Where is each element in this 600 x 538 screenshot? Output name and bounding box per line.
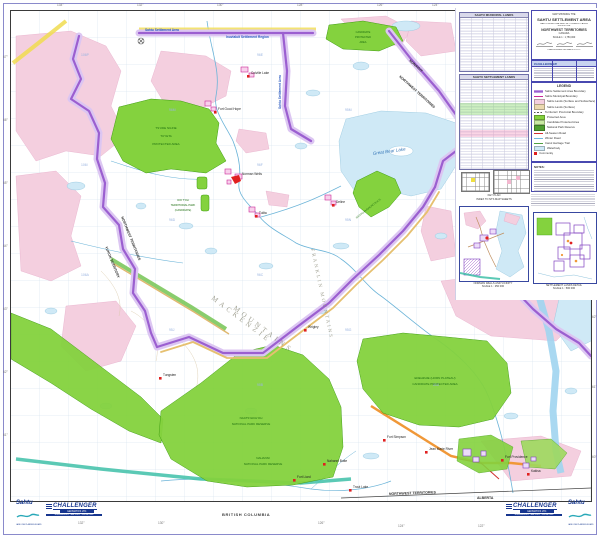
svg-text:ALBERTA: ALBERTA (477, 496, 494, 500)
bottom-tick: 130° (158, 521, 165, 525)
svg-text:95N: 95N (345, 218, 352, 222)
key-plan-grid-right (493, 170, 530, 194)
highlighted-rows-green (460, 103, 528, 115)
key-plan-current-sheet (471, 178, 475, 182)
svg-text:95J: 95J (169, 328, 175, 332)
left-tick: 65° (3, 181, 8, 185)
notes-block: NOTES: (531, 162, 597, 192)
top-tick: 124° (432, 3, 439, 7)
map-surround-panel: SAHTU MUNICIPAL LANDS SAHTU SETTLEMENT L… (455, 8, 598, 300)
svg-text:AREA: AREA (359, 40, 366, 44)
left-tick: 62° (3, 370, 8, 374)
sahtu-logo-text: Sahtu (568, 500, 594, 506)
map-title: SAHTU SETTLEMENT AREA (532, 17, 596, 22)
british-columbia-label: BRITISH COLUMBIA (222, 512, 270, 517)
svg-text:TUYETA: TUYETA (160, 134, 172, 138)
svg-text:96F: 96F (257, 163, 263, 167)
key-plan-caption2: INDEX TO NTS MAP SHEETS (459, 198, 529, 201)
svg-text:NATIONAL PARK RESERVE: NATIONAL PARK RESERVE (244, 462, 283, 466)
challenger-logo-text: CHALLENGER (513, 503, 557, 510)
legend-label: Canol Heritage Trail (545, 142, 570, 145)
sahtu-logo-right: Sahtu LAND USE PLANNING BOARD (568, 500, 594, 526)
right-tick: 60° (592, 455, 597, 459)
map-sheet-page: { "page_title": "Sahtu Settlement Area M… (0, 0, 600, 538)
legend-swatch-lands-s (534, 104, 545, 109)
svg-text:96M: 96M (169, 108, 176, 112)
svg-text:PROTECTED: PROTECTED (355, 35, 371, 39)
challenger-wordmark-small: CHALLENGER (534, 62, 557, 66)
challenger-logo-left: CHALLENGER GEOMATICS LTD. ENGINEERING · … (46, 503, 102, 516)
svg-text:106P: 106P (81, 53, 90, 57)
challenger-logo-right: CHALLENGER GEOMATICS LTD. ENGINEERING · … (506, 503, 562, 516)
legend-label: Sahtu Settlement Area Boundary (545, 90, 586, 93)
mine-symbol (138, 38, 144, 44)
legend-label: Waterbody (547, 147, 560, 150)
legend-label: Winter Road (545, 137, 561, 140)
svg-text:(CANDIDATE): (CANDIDATE) (175, 208, 192, 212)
svg-text:Fort Liard: Fort Liard (297, 475, 311, 479)
challenger-bars-icon (46, 504, 52, 509)
bottom-tick: 132° (78, 521, 85, 525)
legend-swatch-winter-road (534, 138, 543, 139)
inset2-caption2: SCALE 1 : 500 000 (533, 287, 595, 290)
key-plan-caption: KEY PLAN (459, 194, 529, 197)
sahtu-wave-icon (568, 513, 592, 519)
legend-swatch-canol (534, 143, 543, 144)
inset-map-settlement-lands: SETTLEMENT LANDS DETAIL SCALE 1 : 500 00… (533, 212, 595, 291)
svg-text:Nahanni Butte: Nahanni Butte (327, 459, 347, 463)
svg-text:NAATS'IHCH'OH: NAATS'IHCH'OH (240, 416, 263, 420)
svg-text:96C: 96C (257, 273, 264, 277)
right-tick: 62° (592, 315, 597, 319)
top-tick: 134° (57, 3, 64, 7)
revision-table: CHALLENGER (531, 60, 597, 82)
table-rows (460, 18, 528, 71)
svg-text:96E: 96E (257, 53, 264, 57)
top-tick: 130° (217, 3, 224, 7)
challenger-logo-top: CHALLENGER (506, 503, 562, 510)
top-tick: 128° (297, 3, 304, 7)
legend-title: LEGEND (532, 84, 596, 88)
svg-text:95G: 95G (345, 328, 352, 332)
svg-text:Norman Wells: Norman Wells (242, 172, 262, 176)
left-tick: 61° (3, 433, 8, 437)
svg-text:DOI T'OH: DOI T'OH (177, 198, 188, 202)
svg-text:95M: 95M (345, 108, 352, 112)
legend-swatch-park (534, 125, 545, 130)
svg-text:Jean Marie River: Jean Marie River (429, 447, 454, 451)
svg-text:Inuvialuit Settlement Region: Inuvialuit Settlement Region (226, 35, 269, 39)
svg-text:CANDIDATE: CANDIDATE (356, 30, 371, 34)
title-kicker: MAP SHOWING THE (532, 13, 596, 16)
svg-text:TERRITORIAL PARK: TERRITORIAL PARK (171, 203, 196, 207)
svg-text:PROTECTED AREA: PROTECTED AREA (152, 142, 179, 146)
svg-text:Colville Lake: Colville Lake (251, 71, 269, 75)
legend-label: Territorial / Provincial Boundary (545, 111, 584, 114)
sahtu-wave-icon (16, 513, 40, 519)
key-plan-cell (516, 176, 520, 180)
svg-text:NATIONAL PARK RESERVE: NATIONAL PARK RESERVE (232, 422, 271, 426)
svg-text:Kakisa: Kakisa (531, 469, 541, 473)
title-country: CANADA (532, 32, 596, 35)
inset1-canvas (459, 206, 529, 282)
challenger-logo-top: CHALLENGER (46, 503, 102, 510)
bottom-tick: 124° (398, 524, 405, 528)
key-plan-cell (507, 180, 511, 184)
challenger-logo-sub: GEOMATICS LTD. (520, 510, 554, 513)
svg-text:96D: 96D (169, 218, 176, 222)
inset1-caption2: SCALE 1 : 250 000 (459, 285, 527, 288)
revision-rows (534, 68, 594, 79)
legend-swatch-water (534, 146, 545, 151)
challenger-logo-bar: ENGINEERING · MAPPING · SURVEYING (46, 514, 102, 516)
legend-label: All-Season Road (545, 132, 566, 135)
challenger-bars-icon (506, 504, 512, 509)
notes-text-lines (534, 170, 594, 192)
svg-text:Fort Simpson: Fort Simpson (387, 435, 406, 439)
legend-swatch-road (534, 133, 543, 134)
svg-text:106I: 106I (81, 163, 88, 167)
municipal-lands-table: SAHTU MUNICIPAL LANDS (459, 12, 529, 72)
title-credit: CHALLENGER GEOMATICS LTD. (532, 49, 596, 51)
svg-text:CANDIDATE PROTECTED AREA: CANDIDATE PROTECTED AREA (412, 382, 457, 386)
bottom-tick: 126° (318, 521, 325, 525)
key-plan-grid-left (461, 172, 490, 192)
title-block: MAP SHOWING THE SAHTU SETTLEMENT AREA SA… (531, 10, 597, 60)
legend-label: Sahtu Lands (Surface) (547, 106, 575, 109)
svg-text:Fort Providence: Fort Providence (505, 455, 528, 459)
svg-text:EDEHZHIE (HORN PLATEAU): EDEHZHIE (HORN PLATEAU) (414, 376, 455, 380)
svg-text:Fort Good Hope: Fort Good Hope (218, 107, 241, 111)
top-tick: 132° (137, 3, 144, 7)
svg-text:TS'UDE NILINE: TS'UDE NILINE (155, 126, 176, 130)
title-scale: SCALE 1 : 1,750,000 (532, 36, 596, 39)
legend: LEGEND Sahtu Settlement Area Boundary Sa… (531, 82, 597, 162)
signature-lines (534, 40, 594, 49)
svg-text:Trout Lake: Trout Lake (353, 485, 368, 489)
legend-item: Community (532, 151, 596, 156)
right-tick: 61° (592, 385, 597, 389)
svg-text:Wrigley: Wrigley (308, 325, 319, 329)
legend-label: Community (539, 152, 553, 155)
svg-text:Tungsten: Tungsten (163, 373, 176, 377)
legend-label: Sahtu Lands (Surface and Subsurface) (547, 100, 595, 103)
legend-label: Sahtu Municipal Boundary (545, 95, 578, 98)
legend-label: Candidate Protected Area (547, 121, 579, 124)
inset-map-norman-wells: NORMAN WELLS AND VICINITY SCALE 1 : 250 … (459, 206, 527, 289)
svg-text:106A: 106A (81, 273, 90, 277)
legend-swatch-community (534, 152, 537, 155)
legend-swatch-municipal (534, 96, 543, 97)
notes-title: NOTES: (534, 165, 594, 169)
left-tick: 66° (3, 118, 8, 122)
inset2-canvas (533, 212, 597, 284)
sahtu-logo-sub: LAND USE PLANNING BOARD (16, 524, 42, 526)
challenger-logo-bar: ENGINEERING · MAPPING · SURVEYING (506, 514, 562, 516)
sahtu-logo-sub: LAND USE PLANNING BOARD (568, 524, 594, 526)
svg-text:Sahtu Settlement Area: Sahtu Settlement Area (145, 28, 179, 32)
legend-swatch-territorial (534, 112, 543, 113)
sahtu-logo-text: Sahtu (16, 500, 42, 506)
svg-text:NAHANNI: NAHANNI (256, 456, 270, 460)
svg-text:Deline: Deline (336, 200, 345, 204)
left-tick: 67° (3, 55, 8, 59)
settlement-lands-table: SAHTU SETTLEMENT LANDS (459, 74, 529, 170)
col-divider (576, 61, 577, 81)
title-sub2: WITHIN THE (532, 25, 596, 27)
challenger-logo-sub: GEOMATICS LTD. (60, 510, 94, 513)
svg-text:Sahtu Settlement Area: Sahtu Settlement Area (278, 75, 282, 109)
highlighted-rows-pink (460, 130, 528, 137)
left-tick: 64° (3, 244, 8, 248)
left-tick: 63° (3, 307, 8, 311)
sahtu-logo-left: Sahtu LAND USE PLANNING BOARD (16, 500, 42, 526)
challenger-logo-text: CHALLENGER (53, 503, 97, 510)
legend-label: Protected Area (547, 116, 566, 119)
top-tick: 126° (377, 3, 384, 7)
legend-swatch-boundary (534, 90, 543, 93)
col-divider (552, 61, 553, 81)
bottom-tick: 122° (478, 524, 485, 528)
svg-text:Tulita: Tulita (259, 211, 267, 215)
legend-label: National Park Reserve (547, 126, 575, 129)
table-rows (460, 80, 528, 169)
svg-text:95B: 95B (257, 383, 264, 387)
references-text-lines (531, 194, 595, 208)
